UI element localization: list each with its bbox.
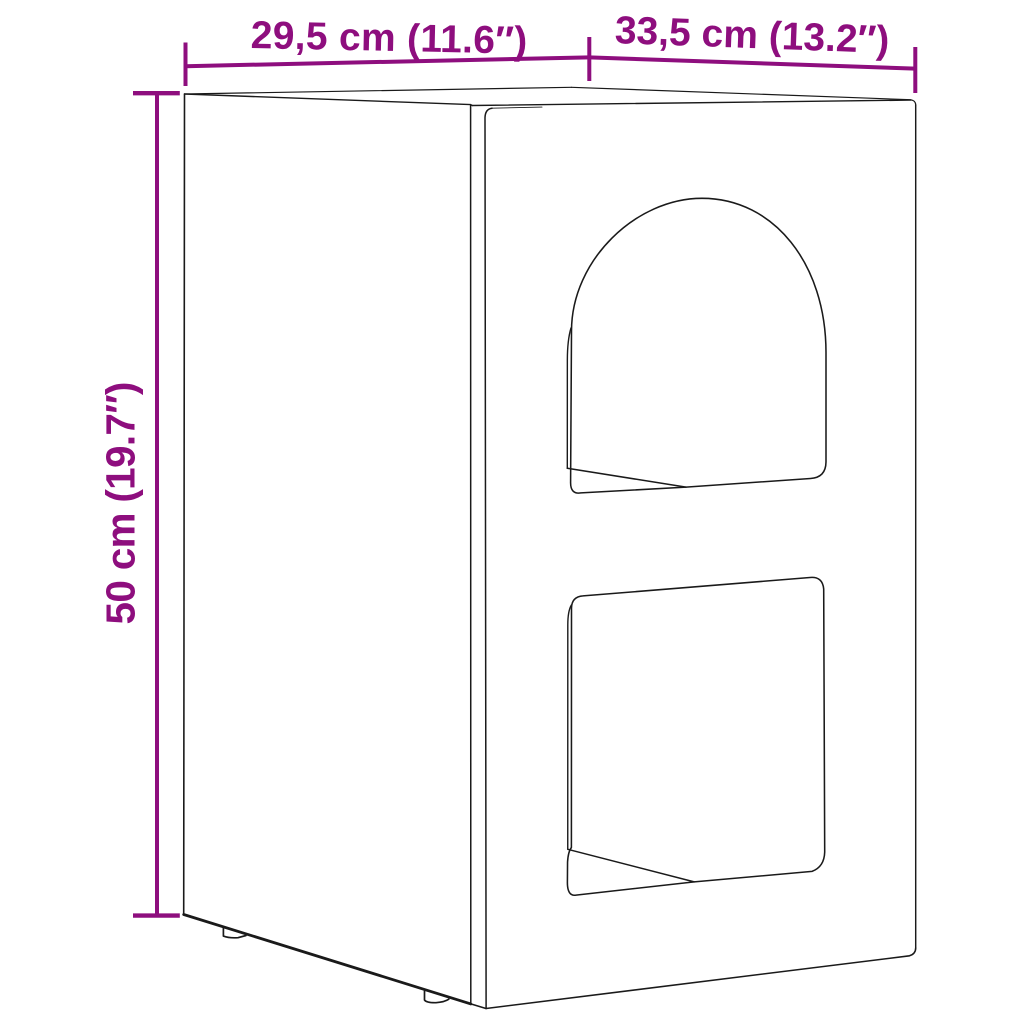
svg-text:29,5 cm (11.6″): 29,5 cm (11.6″) [250,14,528,63]
svg-text:50 cm (19.7″): 50 cm (19.7″) [98,382,144,624]
